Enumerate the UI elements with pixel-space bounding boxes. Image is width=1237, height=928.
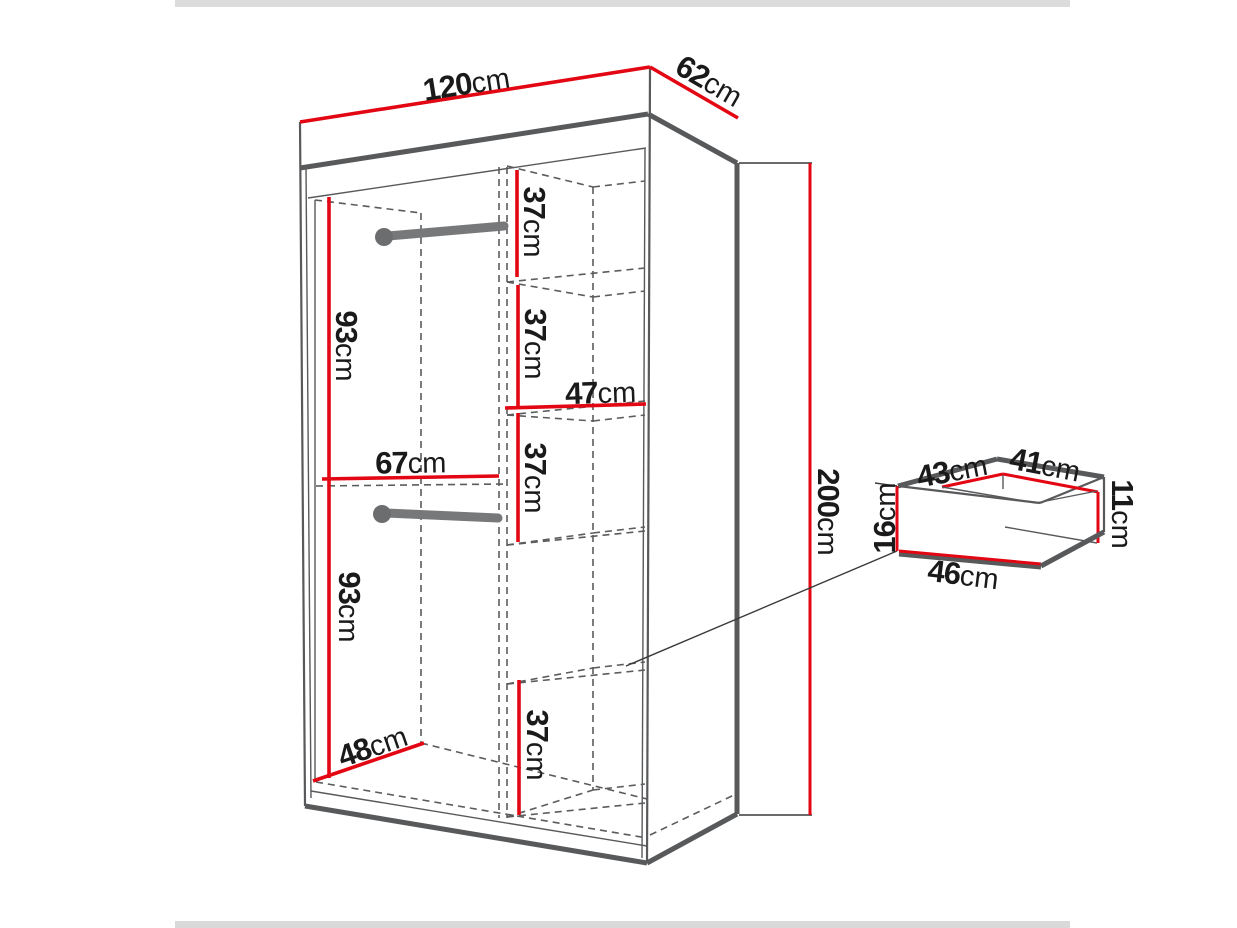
label-47: 47cm [564, 374, 636, 411]
top-panel-side-lower-edge [648, 114, 737, 163]
upper-hanging-unit: cm [329, 343, 361, 382]
interior-ceiling-edge [308, 148, 646, 198]
svg-text:11cm: 11cm [1105, 479, 1140, 548]
drawer-side-height-unit: cm [1105, 510, 1137, 549]
svg-text:37cm: 37cm [518, 442, 553, 513]
height-unit: cm [811, 517, 843, 556]
shelf-depth-top [507, 166, 593, 187]
shelf-back-top [593, 181, 645, 187]
label-drawer-16: 16cm [867, 482, 902, 553]
svg-text:120cm: 120cm [420, 60, 512, 108]
shelf-width-unit: cm [597, 377, 637, 410]
top-hanging-rail [388, 226, 504, 236]
bottom-front-edge [305, 806, 647, 863]
label-67: 67cm [375, 444, 447, 480]
floor-front-line [316, 782, 647, 838]
shelf4-front [507, 670, 645, 684]
label-drawer-11: 11cm [1105, 479, 1140, 548]
compartment4-unit: cm [520, 742, 552, 781]
top-rail-end-cap [375, 228, 393, 246]
label-height-200: 200cm [811, 468, 846, 555]
height-value: 200 [811, 468, 846, 517]
svg-text:67cm: 67cm [375, 444, 447, 480]
plinth-top-edge [311, 791, 647, 846]
compartment3-value: 37 [518, 442, 553, 474]
label-upper-93: 93cm [329, 310, 364, 381]
shelf1-front [507, 268, 645, 282]
upper-hanging-value: 93 [329, 310, 364, 343]
compartment4-value: 37 [520, 709, 555, 741]
shelf3-back [593, 527, 645, 533]
ceiling-depth-line [315, 200, 421, 213]
shelf2-back [593, 415, 645, 421]
compartment2-unit: cm [518, 341, 550, 380]
interior-right-wall-edge [642, 149, 645, 858]
left-outer-edge [300, 122, 305, 806]
card-edge-bottom [175, 921, 1070, 928]
shelf3-depth [507, 533, 593, 545]
top-panel-front-lower-edge [300, 114, 648, 168]
label-37-1: 37cm [517, 186, 552, 257]
shelf-width-value: 47 [564, 375, 598, 411]
svg-text:48cm: 48cm [333, 718, 412, 774]
label-depth-62: 62cm [670, 48, 749, 114]
label-37-4: 37cm [520, 709, 555, 780]
left-inner-edge-line [306, 168, 311, 798]
diagram-canvas: 120cm 62cm 200cm 93cm 93cm 67cm 48cm 47c… [0, 0, 1237, 928]
label-48: 48cm [333, 718, 412, 774]
svg-text:37cm: 37cm [520, 709, 555, 780]
svg-text:37cm: 37cm [518, 308, 553, 379]
svg-text:47cm: 47cm [564, 374, 636, 411]
label-lower-93: 93cm [332, 571, 367, 642]
bottom-rail-end-cap [373, 505, 391, 523]
shelf-column-floor [507, 803, 645, 817]
wardrobe-dimension-diagram: 120cm 62cm 200cm 93cm 93cm 67cm 48cm 47c… [0, 0, 1237, 928]
drawer-leader-line [626, 551, 897, 666]
svg-text:93cm: 93cm [329, 310, 364, 381]
svg-text:16cm: 16cm [867, 482, 902, 553]
mid-shelf-line [316, 484, 505, 486]
right-front-edge [647, 67, 650, 863]
bottom-hanging-rail [386, 513, 498, 518]
drawer-bottom-width-value: 46 [926, 553, 963, 592]
shelf4-back [593, 662, 645, 668]
drawer-bottom-width-unit: cm [958, 560, 1000, 596]
drawer-side-height-value: 11 [1105, 479, 1140, 511]
width-value: 120 [420, 66, 474, 108]
floor-right-hidden [650, 795, 734, 835]
bottom-right-edge [647, 814, 737, 863]
compartment1-unit: cm [517, 219, 549, 258]
interior-width-value: 67 [375, 445, 408, 481]
label-width-120: 120cm [420, 60, 512, 108]
drawer-front-height-unit: cm [870, 482, 902, 521]
shelf1-depth [507, 282, 593, 297]
compartment2-value: 37 [518, 308, 553, 340]
card-edge-top [175, 0, 1070, 7]
shelf2-depth [507, 415, 593, 421]
compartment3-unit: cm [518, 475, 550, 514]
svg-text:37cm: 37cm [517, 186, 552, 257]
drawer-front-height-value: 16 [867, 520, 902, 553]
interior-width-unit: cm [407, 447, 446, 480]
svg-text:93cm: 93cm [332, 571, 367, 642]
lower-hanging-unit: cm [332, 604, 364, 643]
shelf1-back [593, 291, 645, 297]
width-unit: cm [469, 62, 512, 100]
label-37-2: 37cm [518, 308, 553, 379]
shelf3-front [507, 531, 645, 545]
svg-text:200cm: 200cm [811, 468, 846, 555]
compartment1-value: 37 [517, 186, 552, 218]
label-37-3: 37cm [518, 442, 553, 513]
svg-text:62cm: 62cm [670, 48, 749, 114]
lower-hanging-value: 93 [332, 571, 367, 604]
